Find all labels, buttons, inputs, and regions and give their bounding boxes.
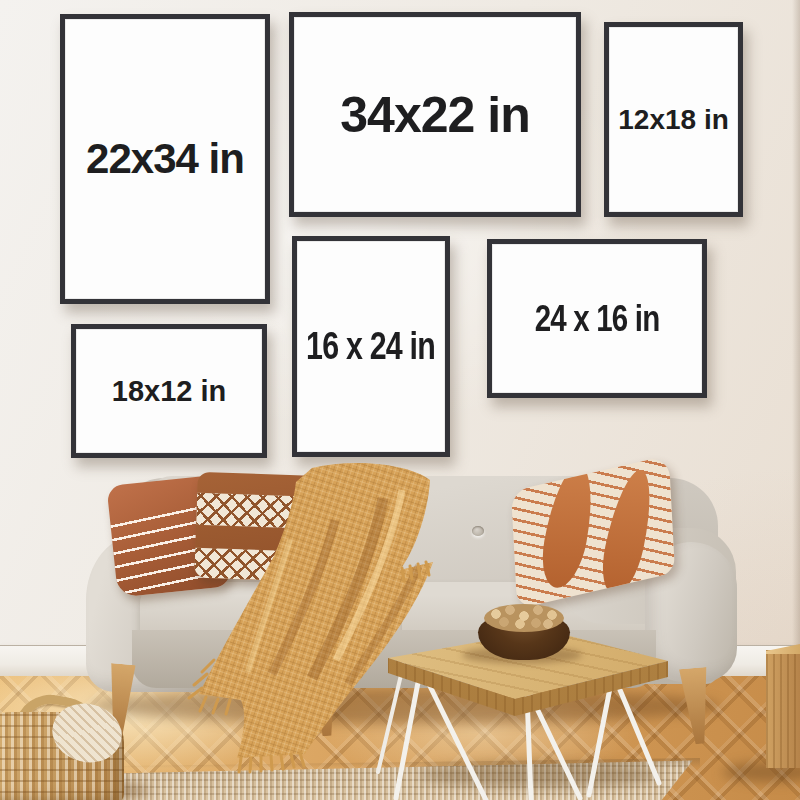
pillow-diamond-band [196,493,329,529]
wood-cube-side-table [766,650,800,768]
sofa-button-tuft [472,526,484,536]
living-room-mockup: 22x34 in 34x22 in 12x18 in 16 x 24 in 24… [0,0,800,800]
sofa [0,0,800,800]
pillow-diamond-band [194,548,327,582]
diamond-pattern-pillow [194,472,330,583]
walnuts [484,604,564,632]
